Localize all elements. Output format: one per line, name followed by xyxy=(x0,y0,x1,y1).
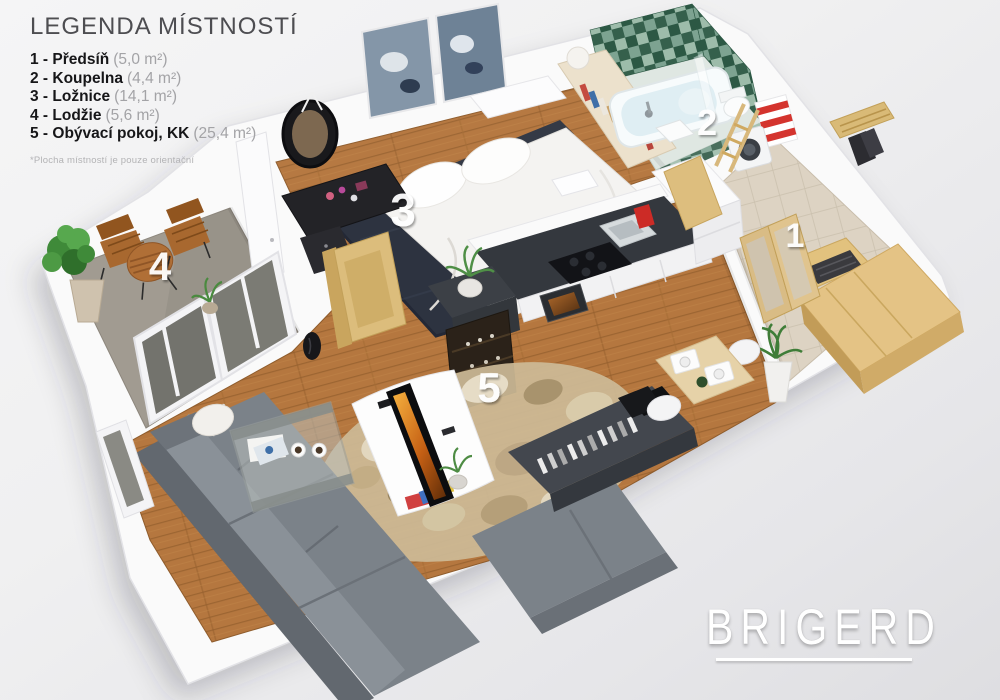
black-vase xyxy=(303,332,321,360)
legend-item-label: 2 - Koupelna xyxy=(30,70,123,87)
room-label-obyvaci-pokoj: 5 xyxy=(477,364,500,411)
legend-footnote: *Plocha místností je pouze orientační xyxy=(30,155,360,166)
legend-item-area: (14,1 m²) xyxy=(110,88,177,105)
legend-item-area: (5,0 m²) xyxy=(109,51,167,68)
legend-title: LEGENDA MÍSTNOSTÍ xyxy=(30,13,360,41)
legend-item-label: 5 - Obývací pokoj, KK xyxy=(30,125,189,142)
brand-logo: BRIGERD xyxy=(706,604,921,661)
brand-logo-underline xyxy=(716,658,912,661)
decor-ball xyxy=(567,47,589,69)
legend-item-loznice: 3 - Ložnice(14,1 m²) xyxy=(30,88,360,107)
legend-item-area: (4,4 m²) xyxy=(123,70,181,87)
brand-logo-text: BRIGERD xyxy=(706,599,942,656)
legend-item-label: 1 - Předsíň xyxy=(30,51,109,68)
room-legend: LEGENDA MÍSTNOSTÍ 1 - Předsíň(5,0 m²) 2 … xyxy=(30,13,360,166)
legend-item-predsin: 1 - Předsíň(5,0 m²) xyxy=(30,51,360,70)
room-label-loznice: 3 xyxy=(390,184,416,236)
table-centerpiece xyxy=(697,377,708,388)
legend-item-label: 4 - Lodžie xyxy=(30,107,101,124)
room-label-lodzie: 4 xyxy=(149,245,172,289)
room-label-predsin: 1 xyxy=(786,217,805,255)
room-label-koupelna: 2 xyxy=(697,102,717,143)
legend-item-koupelna: 2 - Koupelna(4,4 m²) xyxy=(30,70,360,89)
legend-item-area: (25,4 m²) xyxy=(189,125,256,142)
legend-item-label: 3 - Ložnice xyxy=(30,88,110,105)
legend-item-area: (5,6 m²) xyxy=(101,107,159,124)
legend-item-obyvaci-pokoj: 5 - Obývací pokoj, KK(25,4 m²) xyxy=(30,125,360,144)
legend-item-lodzie: 4 - Lodžie(5,6 m²) xyxy=(30,107,360,126)
floorplan-scene: 1 2 3 4 5 LEGENDA MÍSTNOSTÍ 1 - Předsíň(… xyxy=(0,0,1000,700)
